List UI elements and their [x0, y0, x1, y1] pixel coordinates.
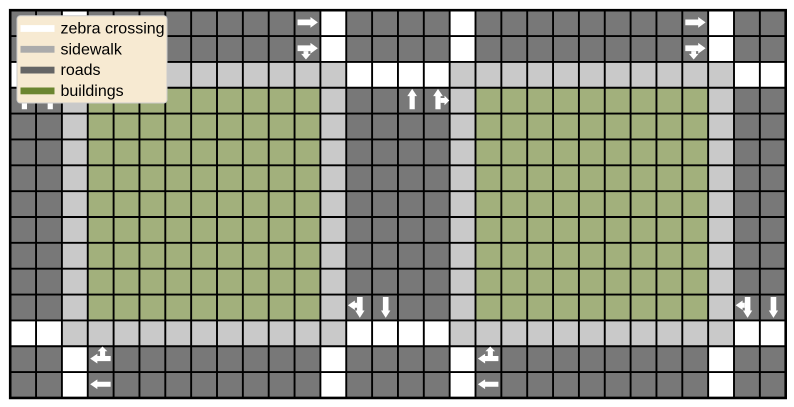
svg-text:sidewalk: sidewalk	[61, 41, 123, 58]
svg-text:buildings: buildings	[61, 83, 124, 100]
svg-text:zebra crossing: zebra crossing	[61, 21, 165, 38]
svg-text:roads: roads	[61, 62, 101, 79]
